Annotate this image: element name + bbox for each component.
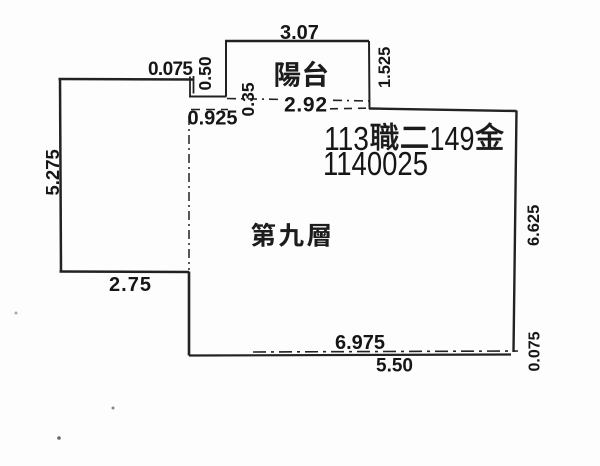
svg-text:2.75: 2.75 bbox=[109, 274, 151, 296]
svg-text:5.50: 5.50 bbox=[376, 356, 413, 377]
svg-text:6.625: 6.625 bbox=[525, 205, 543, 246]
svg-text:149: 149 bbox=[430, 120, 475, 157]
svg-text:0.35: 0.35 bbox=[238, 82, 258, 116]
svg-text:0.50: 0.50 bbox=[195, 56, 215, 90]
svg-text:1140025: 1140025 bbox=[323, 145, 428, 182]
svg-text:3.07: 3.07 bbox=[280, 22, 319, 44]
svg-text:1.525: 1.525 bbox=[376, 47, 394, 88]
svg-text:0.075: 0.075 bbox=[527, 331, 544, 371]
svg-text:0.075: 0.075 bbox=[148, 59, 193, 80]
svg-text:0.925: 0.925 bbox=[188, 108, 238, 130]
svg-text:2.92: 2.92 bbox=[284, 94, 327, 117]
svg-text:6.975: 6.975 bbox=[335, 332, 385, 354]
svg-text:5.275: 5.275 bbox=[42, 149, 63, 195]
